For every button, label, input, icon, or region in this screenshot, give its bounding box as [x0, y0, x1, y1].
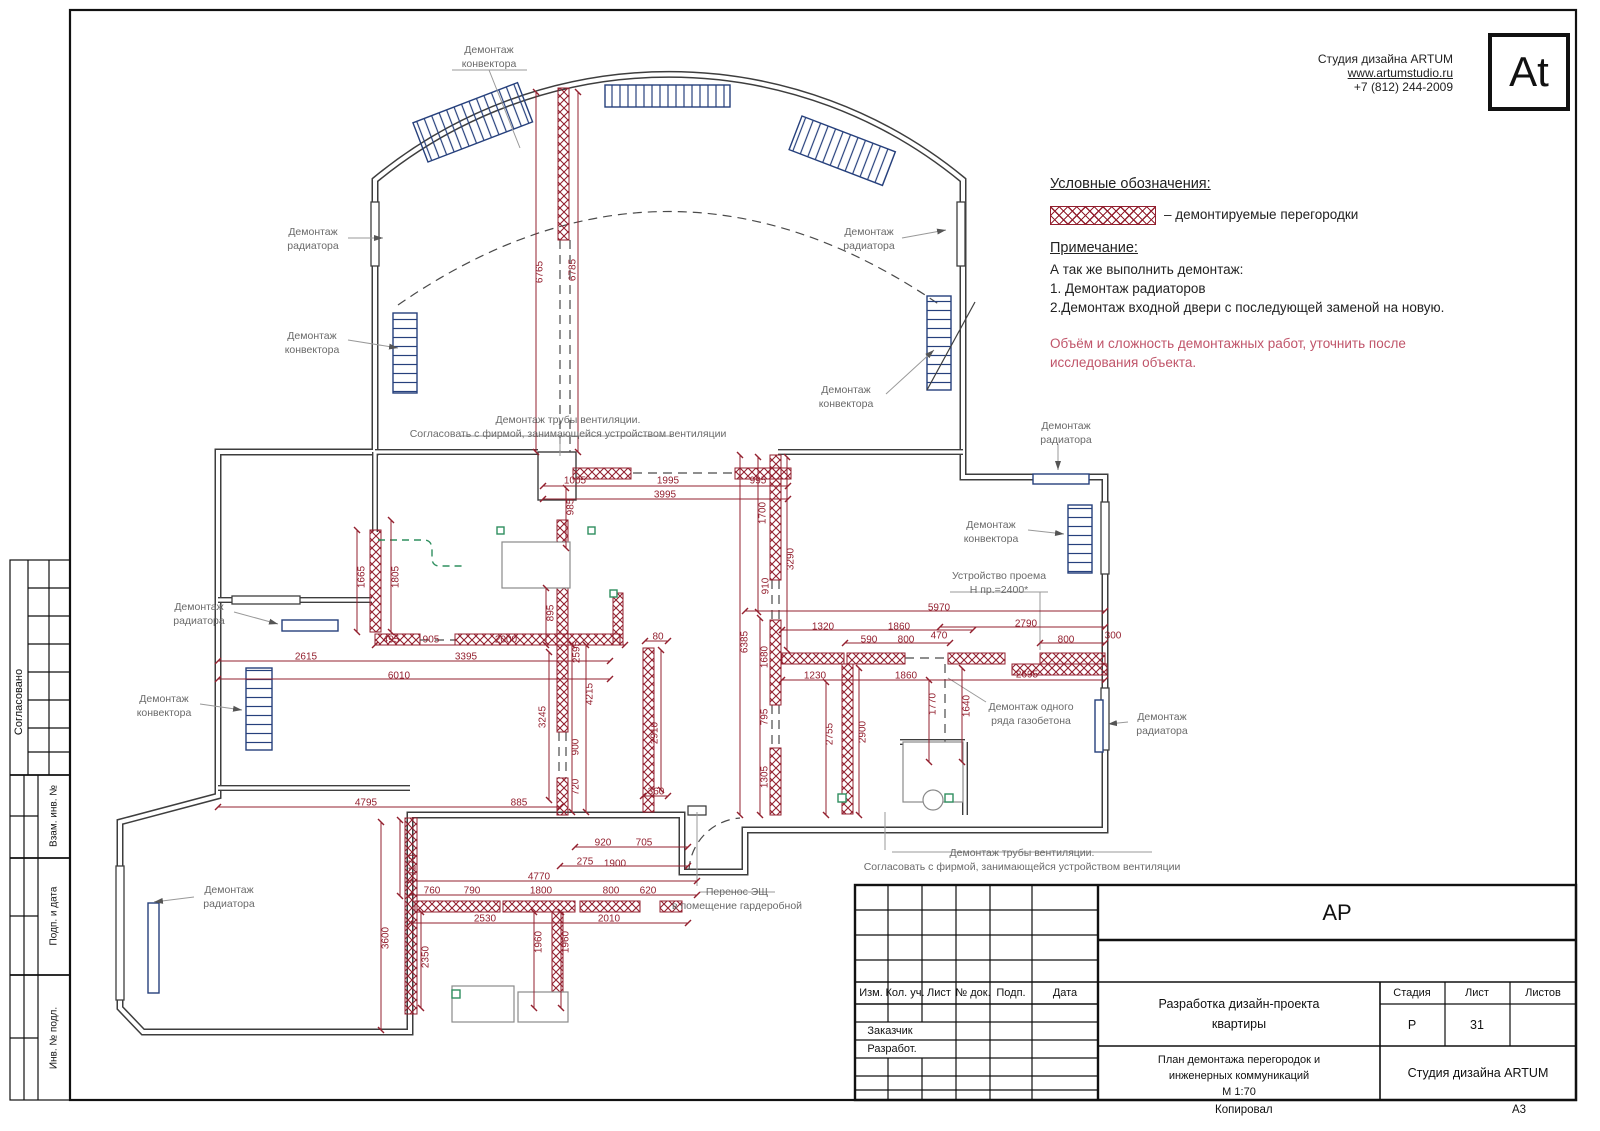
dimension-value: 6010	[388, 671, 410, 682]
dimension-value: 6765	[535, 261, 546, 283]
left-stamp-grid	[10, 560, 70, 1100]
sheet-frame	[70, 10, 1576, 1100]
tb-col-list: Лист	[927, 987, 951, 999]
callout-label: Демонтаж радиатора	[1136, 710, 1188, 738]
dimension-value: 885	[511, 798, 528, 809]
dimension-value: 1900	[604, 859, 626, 870]
dimension-value: 4215	[585, 683, 596, 705]
dimension-value: 1230	[804, 671, 826, 682]
dimension-value: 1170	[408, 854, 419, 876]
dimension-value: 590	[861, 635, 878, 646]
callout-label: Демонтаж конвектора	[819, 383, 874, 411]
callout-label: Демонтаж конвектора	[285, 329, 340, 357]
stage-value: Р	[1408, 1018, 1416, 1032]
dimension-value: 1320	[812, 622, 834, 633]
dimension-value: 3600	[381, 927, 392, 949]
dimension-value: 2900	[858, 721, 869, 743]
company-logo-text: At	[1509, 48, 1549, 96]
dimension-lines	[218, 92, 1105, 1030]
dimension-value: 1960	[534, 931, 545, 953]
dimension-value: 2790	[1015, 619, 1037, 630]
dimension-value: 495	[383, 635, 400, 646]
callout-label: Демонтаж радиатора	[843, 225, 895, 253]
tb-col-koluch: Кол. уч.	[885, 987, 924, 999]
radiators	[148, 474, 1103, 993]
sheet-scale: М 1:70	[1222, 1086, 1256, 1098]
dimension-value: 1800	[530, 886, 552, 897]
note-warning: Объём и сложность демонтажных работ, уто…	[1050, 334, 1406, 353]
callout-label: Перенос ЭЩ в помещение гардеробной	[672, 885, 802, 913]
floor-plan	[0, 0, 1600, 1131]
callout-label: Демонтаж радиатора	[173, 600, 225, 628]
dimension-value: 1680	[760, 646, 771, 668]
callout-label: Демонтаж одного ряда газобетона	[988, 700, 1073, 728]
dimension-value: 2595	[572, 641, 583, 663]
note-line: А так же выполнить демонтаж:	[1050, 260, 1243, 279]
dimension-value: 3395	[455, 652, 477, 663]
drawing-sheet: Демонтаж конвектораДемонтаж радиатораДем…	[0, 0, 1600, 1131]
company-logo: At	[1488, 33, 1570, 111]
dimension-value: 905	[423, 635, 440, 646]
dimension-value: 1805	[391, 566, 402, 588]
dimension-value: 1305	[760, 766, 771, 788]
stamp-label-podp-data: Подп. и дата	[49, 887, 60, 946]
sheet-title: План демонтажа перегородок и	[1158, 1054, 1320, 1066]
tb-row-customer: Заказчик	[867, 1025, 912, 1037]
dimension-value: 760	[424, 886, 441, 897]
dimension-value: 800	[603, 886, 620, 897]
studio-name: Студия дизайна ARTUM	[1408, 1066, 1549, 1080]
dimension-value: 1860	[895, 671, 917, 682]
stage-label: Стадия	[1393, 987, 1431, 999]
callout-label: Демонтаж радиатора	[1040, 419, 1092, 447]
tb-col-ndok: № док.	[955, 987, 990, 999]
dimension-value: 720	[571, 779, 582, 796]
tb-col-podp: Подп.	[996, 987, 1025, 999]
dimension-value: 795	[760, 709, 771, 726]
stamp-label-inv-podl: Инв. № подл.	[49, 1007, 60, 1069]
dimension-value: 2530	[474, 914, 496, 925]
callout-label: Демонтаж конвектора	[462, 43, 517, 71]
tb-col-data: Дата	[1053, 987, 1077, 999]
utility-lines-green	[378, 527, 953, 998]
dimension-value: 620	[640, 886, 657, 897]
dimension-value: 5970	[928, 603, 950, 614]
dimension-value: 895	[546, 605, 557, 622]
dimension-value: 2615	[295, 652, 317, 663]
note-line: 1. Демонтаж радиаторов	[1050, 279, 1206, 298]
note-warning: исследования объекта.	[1050, 353, 1196, 372]
dimension-value: 1770	[928, 693, 939, 715]
callout-label: Демонтаж конвектора	[964, 518, 1019, 546]
format-label: А3	[1512, 1104, 1526, 1116]
dimension-value: 1960	[561, 931, 572, 953]
dimension-value: 2350	[421, 946, 432, 968]
dimension-value: 2010	[598, 914, 620, 925]
dimension-value: 1640	[962, 695, 973, 717]
sheet-value: 31	[1470, 1018, 1484, 1032]
sheet-title: инженерных коммуникаций	[1169, 1070, 1309, 1082]
stamp-label-vzam-inv: Взам. инв. №	[49, 785, 60, 847]
dimension-value: 2755	[825, 723, 836, 745]
dimension-value: 2695	[1016, 670, 1038, 681]
company-site: www.artumstudio.ru	[1253, 66, 1453, 80]
dimension-value: 6385	[740, 631, 751, 653]
dimension-value: 800	[898, 635, 915, 646]
dimension-value: 705	[636, 838, 653, 849]
dimension-value: 275	[577, 857, 594, 868]
fixtures	[452, 542, 963, 1022]
dimension-value: 2000	[495, 635, 517, 646]
tb-col-izm: Изм.	[859, 987, 883, 999]
dimension-value: 900	[571, 739, 582, 756]
legend-title: Условные обозначения:	[1050, 176, 1211, 192]
stamp-label-soglasovano: Согласовано	[13, 669, 25, 735]
dimension-value: 2910	[650, 722, 661, 744]
dimension-value: 360	[648, 787, 665, 798]
callout-label: Устройство проема Н пр.=2400*	[952, 569, 1046, 597]
dimension-value: 4770	[528, 872, 550, 883]
project-title: Разработка дизайн-проекта	[1159, 997, 1320, 1011]
callout-label: Демонтаж радиатора	[203, 883, 255, 911]
dimension-value: 3290	[786, 548, 797, 570]
company-name: Студия дизайна ARTUM	[1253, 52, 1453, 66]
dimension-value: 985	[566, 499, 577, 516]
company-info: Студия дизайна ARTUM www.artumstudio.ru …	[1253, 52, 1453, 94]
dimension-value: 790	[464, 886, 481, 897]
note-title: Примечание:	[1050, 240, 1138, 256]
sheet-label: Лист	[1465, 987, 1489, 999]
note-line: 2.Демонтаж входной двери с последующей з…	[1050, 298, 1444, 317]
dimension-value: 1860	[888, 622, 910, 633]
sheets-label: Листов	[1525, 987, 1561, 999]
dimension-value: 3245	[538, 706, 549, 728]
callout-label: Демонтаж трубы вентиляции. Согласовать с…	[864, 846, 1181, 874]
legend-item-label: – демонтируемые перегородки	[1164, 207, 1358, 222]
callout-label: Демонтаж радиатора	[287, 225, 339, 253]
dimension-value: 1995	[657, 476, 679, 487]
dimension-value: 920	[595, 838, 612, 849]
dimension-value: 6785	[568, 259, 579, 281]
dimension-value: 3995	[654, 490, 676, 501]
dimension-value: 300	[1105, 631, 1122, 642]
dimension-value: 800	[1058, 635, 1075, 646]
legend-hatch-sample	[1050, 206, 1156, 225]
doc-code: АР	[1322, 900, 1351, 926]
dimension-value: 4795	[355, 798, 377, 809]
callout-label: Демонтаж трубы вентиляции. Согласовать с…	[410, 413, 727, 441]
callout-label: Демонтаж конвектора	[137, 692, 192, 720]
dashed-lines	[398, 212, 948, 871]
dimension-value: 1005	[564, 476, 586, 487]
dimension-value: 995	[750, 476, 767, 487]
dimension-value: 470	[931, 631, 948, 642]
copied-label: Копировал	[1215, 1104, 1273, 1116]
tb-row-developer: Разработ.	[867, 1043, 916, 1055]
dimension-value: 80	[652, 632, 663, 643]
dimension-value: 1665	[357, 566, 368, 588]
dimension-value: 910	[761, 578, 772, 595]
company-phone: +7 (812) 244-2009	[1253, 80, 1453, 94]
dimension-value: 1700	[758, 502, 769, 524]
project-title: квартиры	[1212, 1017, 1266, 1031]
